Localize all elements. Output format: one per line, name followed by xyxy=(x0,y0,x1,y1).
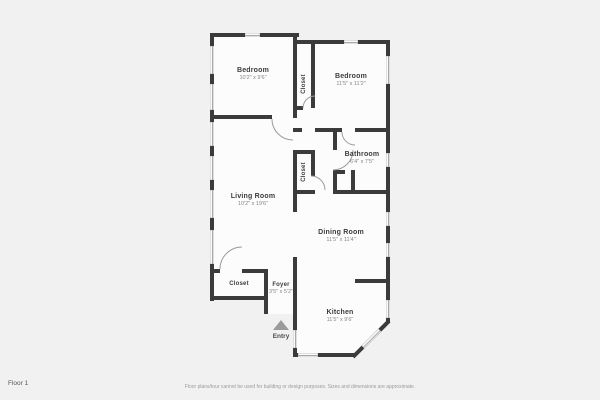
room-label-closet-middle: Closet xyxy=(300,162,308,182)
room-label-bathroom: Bathroom 6'4" x 7'5" xyxy=(345,151,380,166)
door-arc xyxy=(272,119,293,140)
room-label-closet-entry: Closet xyxy=(229,280,249,288)
entry-label: Entry xyxy=(273,333,290,340)
room-label-dining-room: Dining Room 11'5" x 11'4" xyxy=(318,229,364,244)
floor-title: Floor 1 xyxy=(8,380,28,387)
door-arc xyxy=(311,176,325,190)
room-label-bedroom-right: Bedroom 11'5" x 11'2" xyxy=(335,73,367,88)
door-arc xyxy=(342,132,355,145)
room-label-closet-top: Closet xyxy=(300,74,308,94)
entry-arrow-icon xyxy=(273,320,289,330)
room-label-bedroom-left: Bedroom 10'2" x 9'6" xyxy=(237,67,269,82)
door-arc xyxy=(303,96,315,108)
room-label-kitchen: Kitchen 11'5" x 9'6" xyxy=(326,309,353,324)
door-arc xyxy=(220,247,242,269)
disclaimer-text: Floor plans/tour cannot be used for buil… xyxy=(185,384,415,390)
door-arcs xyxy=(0,0,600,400)
floor-plan: Bedroom 10'2" x 9'6" Closet Bedroom 11'5… xyxy=(0,0,600,400)
room-label-foyer: Foyer 3'5" x 5'2" xyxy=(269,281,293,296)
room-label-living-room: Living Room 10'2" x 19'6" xyxy=(231,193,276,208)
